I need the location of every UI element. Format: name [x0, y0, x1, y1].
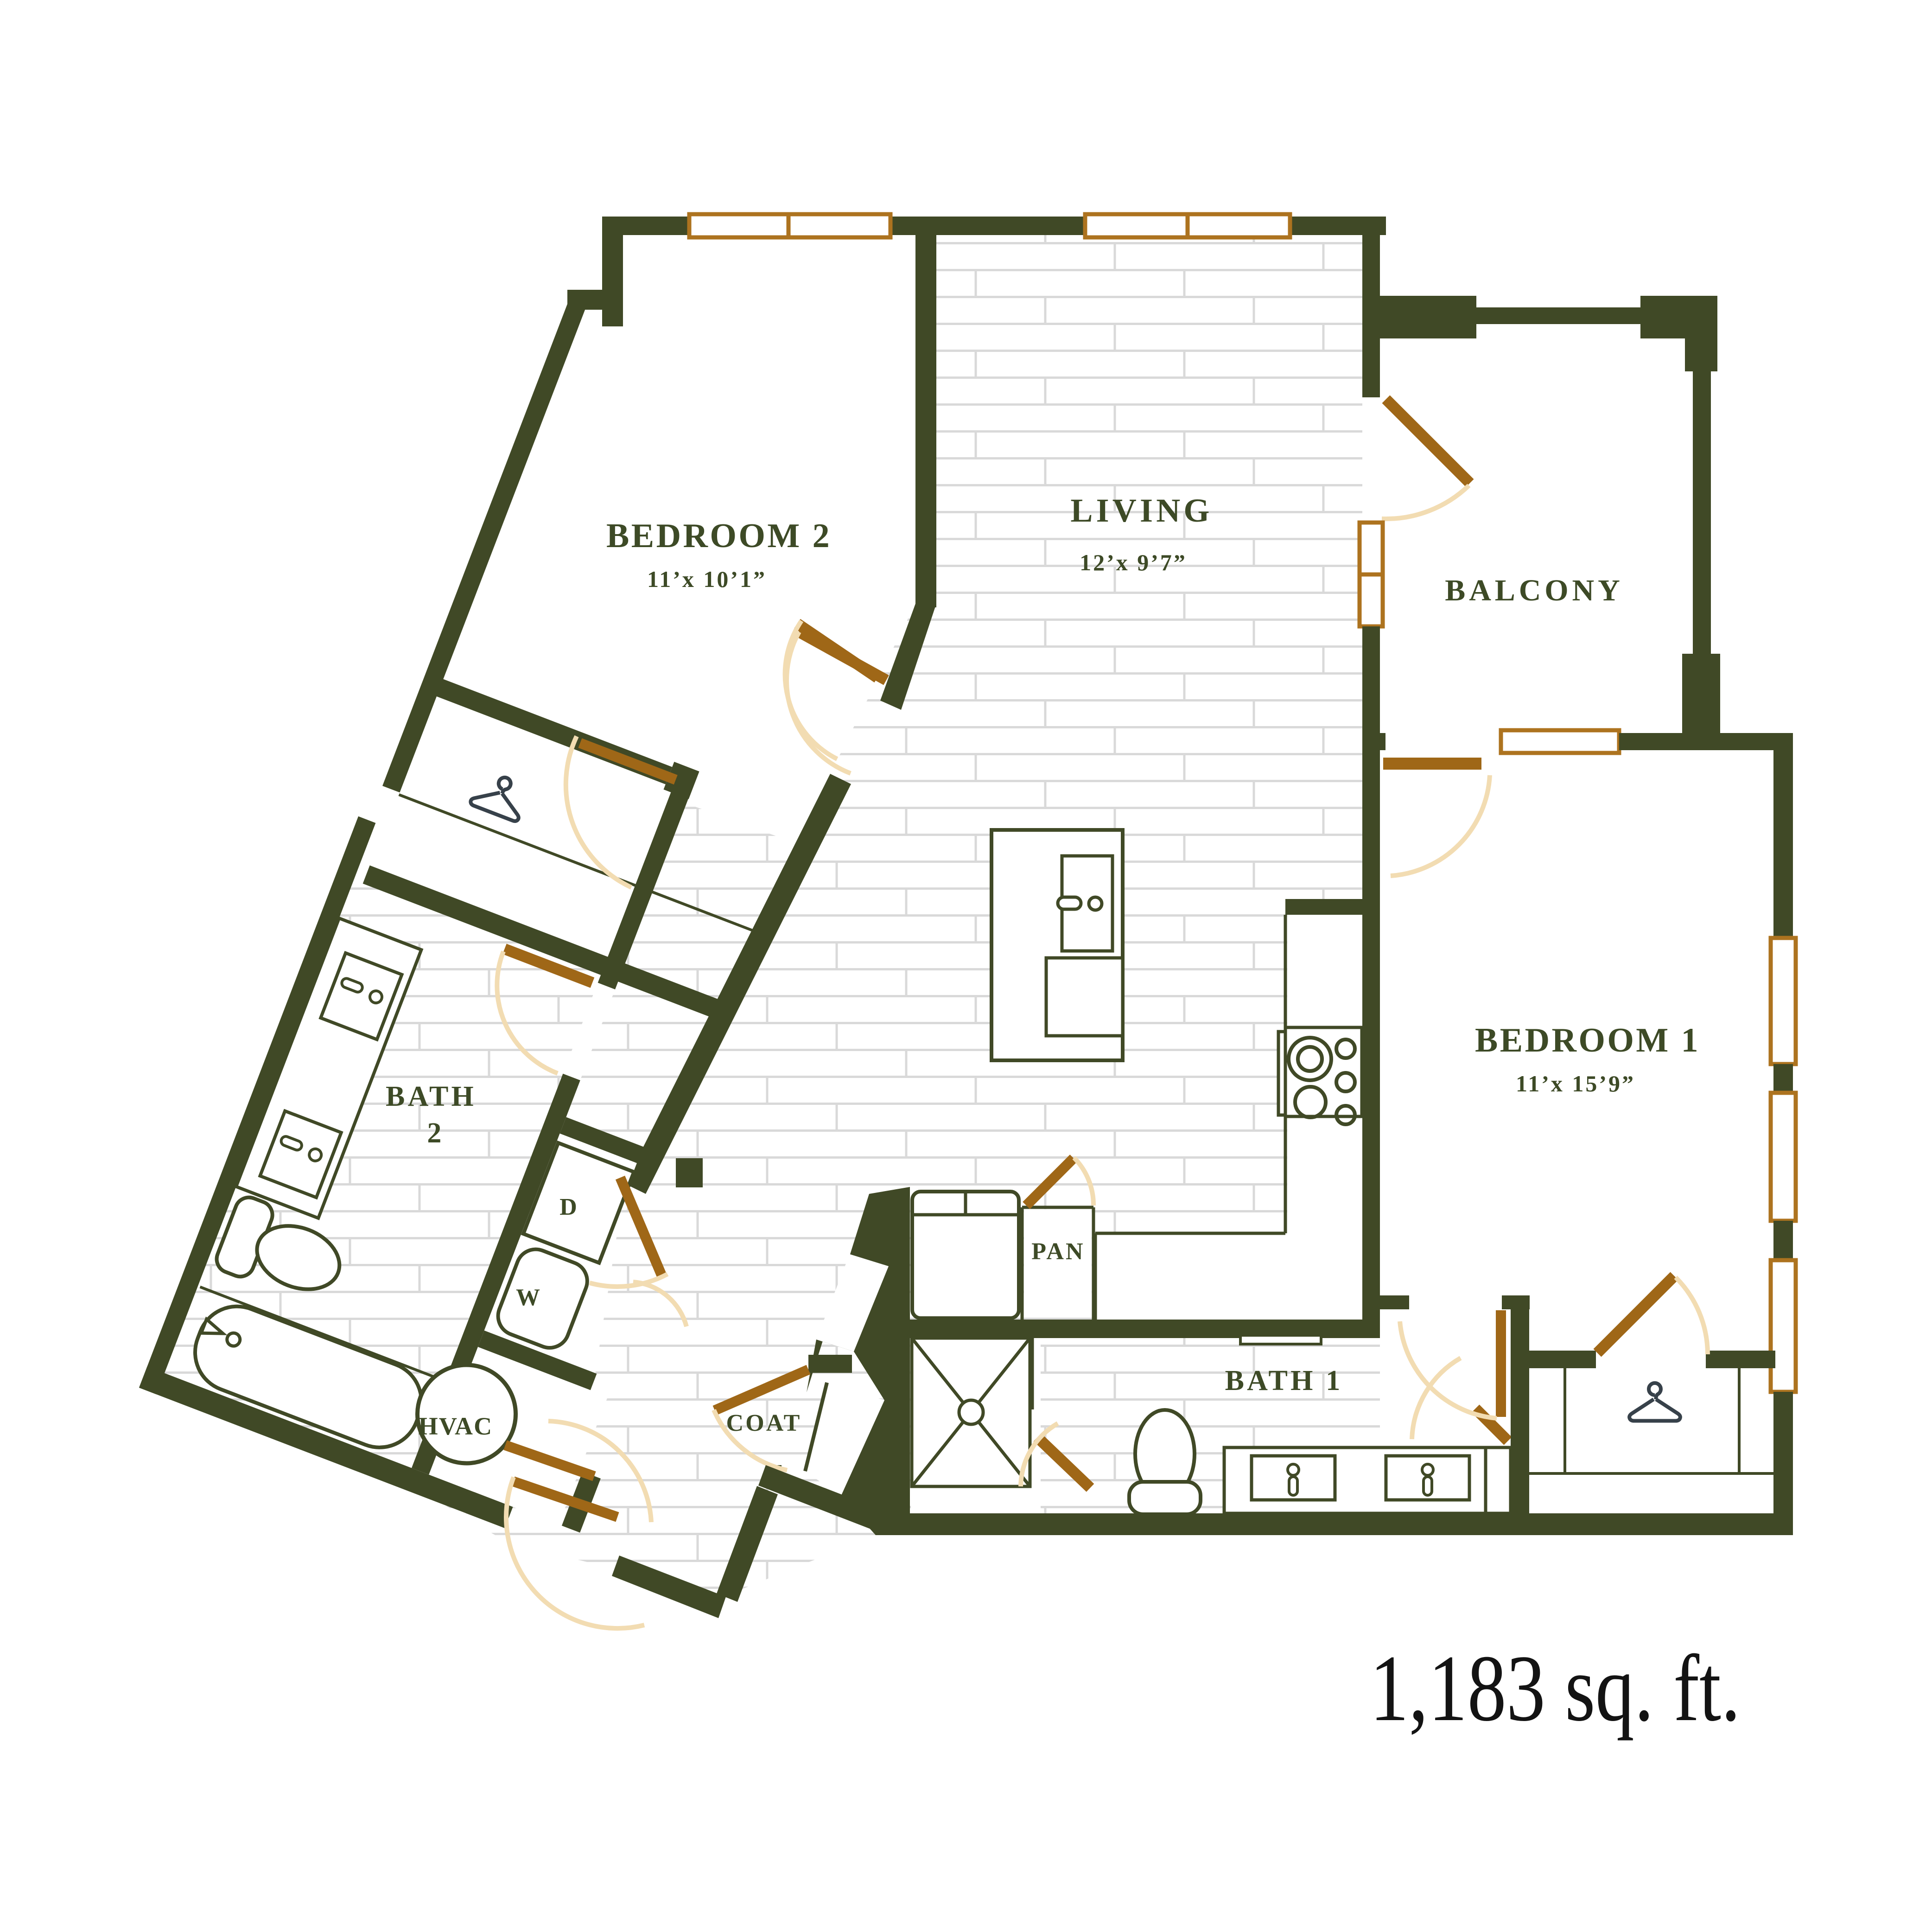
- svg-text:11’x 15’9”: 11’x 15’9”: [1516, 1071, 1635, 1097]
- svg-text:PAN: PAN: [1031, 1238, 1085, 1265]
- svg-text:D: D: [559, 1194, 577, 1220]
- svg-text:2: 2: [427, 1117, 444, 1149]
- svg-text:COAT: COAT: [726, 1410, 801, 1436]
- svg-text:BATH: BATH: [386, 1081, 477, 1112]
- svg-text:1,183 sq. ft.: 1,183 sq. ft.: [1370, 1636, 1741, 1741]
- svg-text:W: W: [516, 1284, 540, 1311]
- svg-text:BEDROOM 2: BEDROOM 2: [606, 517, 832, 555]
- svg-text:LIVING: LIVING: [1070, 492, 1213, 529]
- svg-text:HVAC: HVAC: [419, 1412, 493, 1440]
- svg-text:11’x 10’1”: 11’x 10’1”: [647, 566, 767, 592]
- svg-text:BEDROOM 1: BEDROOM 1: [1475, 1021, 1700, 1059]
- svg-text:12’x 9’7”: 12’x 9’7”: [1080, 549, 1187, 575]
- svg-text:BALCONY: BALCONY: [1445, 574, 1623, 607]
- svg-text:BATH 1: BATH 1: [1225, 1365, 1343, 1396]
